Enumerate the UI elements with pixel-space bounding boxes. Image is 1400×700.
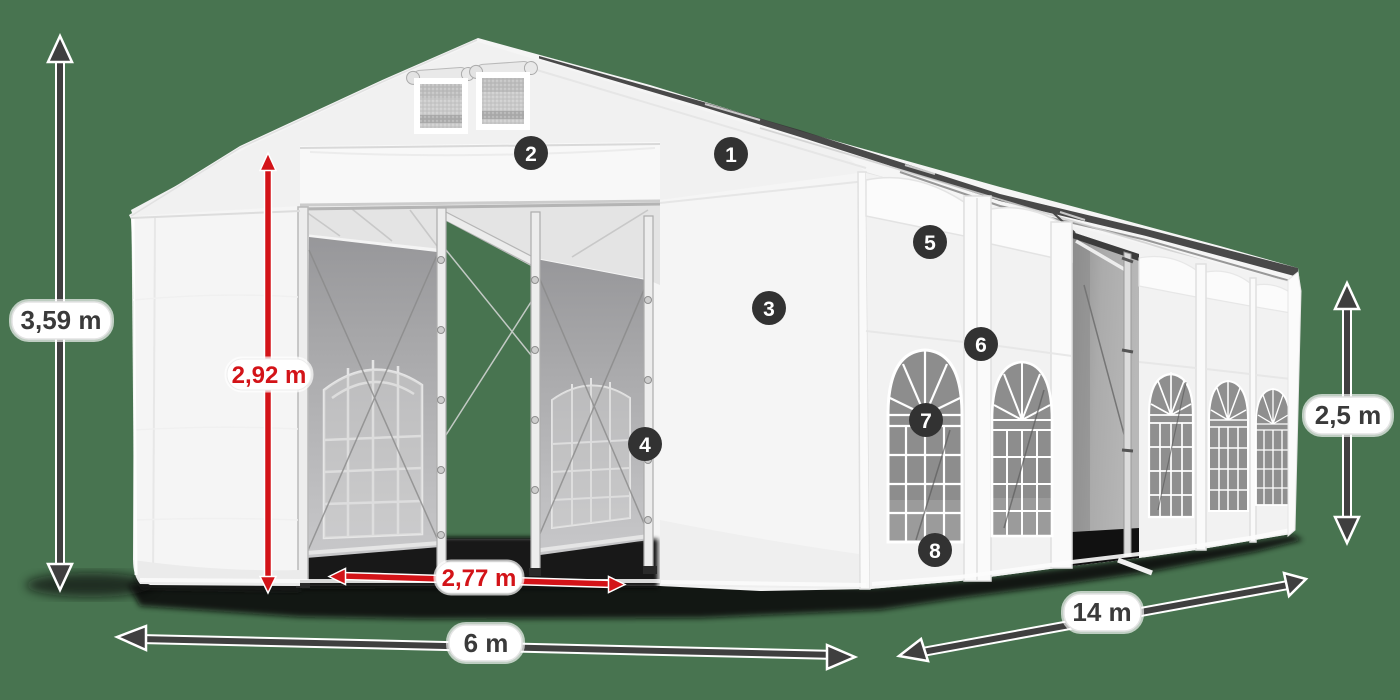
svg-text:8: 8 — [929, 540, 941, 563]
svg-text:3,59 m: 3,59 m — [21, 305, 102, 335]
svg-text:4: 4 — [639, 434, 651, 457]
svg-text:7: 7 — [920, 410, 932, 433]
svg-text:2: 2 — [525, 143, 537, 166]
svg-text:6: 6 — [975, 334, 987, 357]
svg-text:6 m: 6 m — [464, 628, 509, 658]
svg-text:2,77 m: 2,77 m — [442, 565, 517, 592]
svg-text:14 m: 14 m — [1072, 597, 1131, 627]
svg-text:2,5 m: 2,5 m — [1315, 400, 1382, 430]
svg-text:2,92 m: 2,92 m — [232, 362, 307, 389]
svg-text:1: 1 — [725, 144, 737, 167]
svg-text:5: 5 — [924, 232, 936, 255]
svg-text:3: 3 — [763, 298, 775, 321]
